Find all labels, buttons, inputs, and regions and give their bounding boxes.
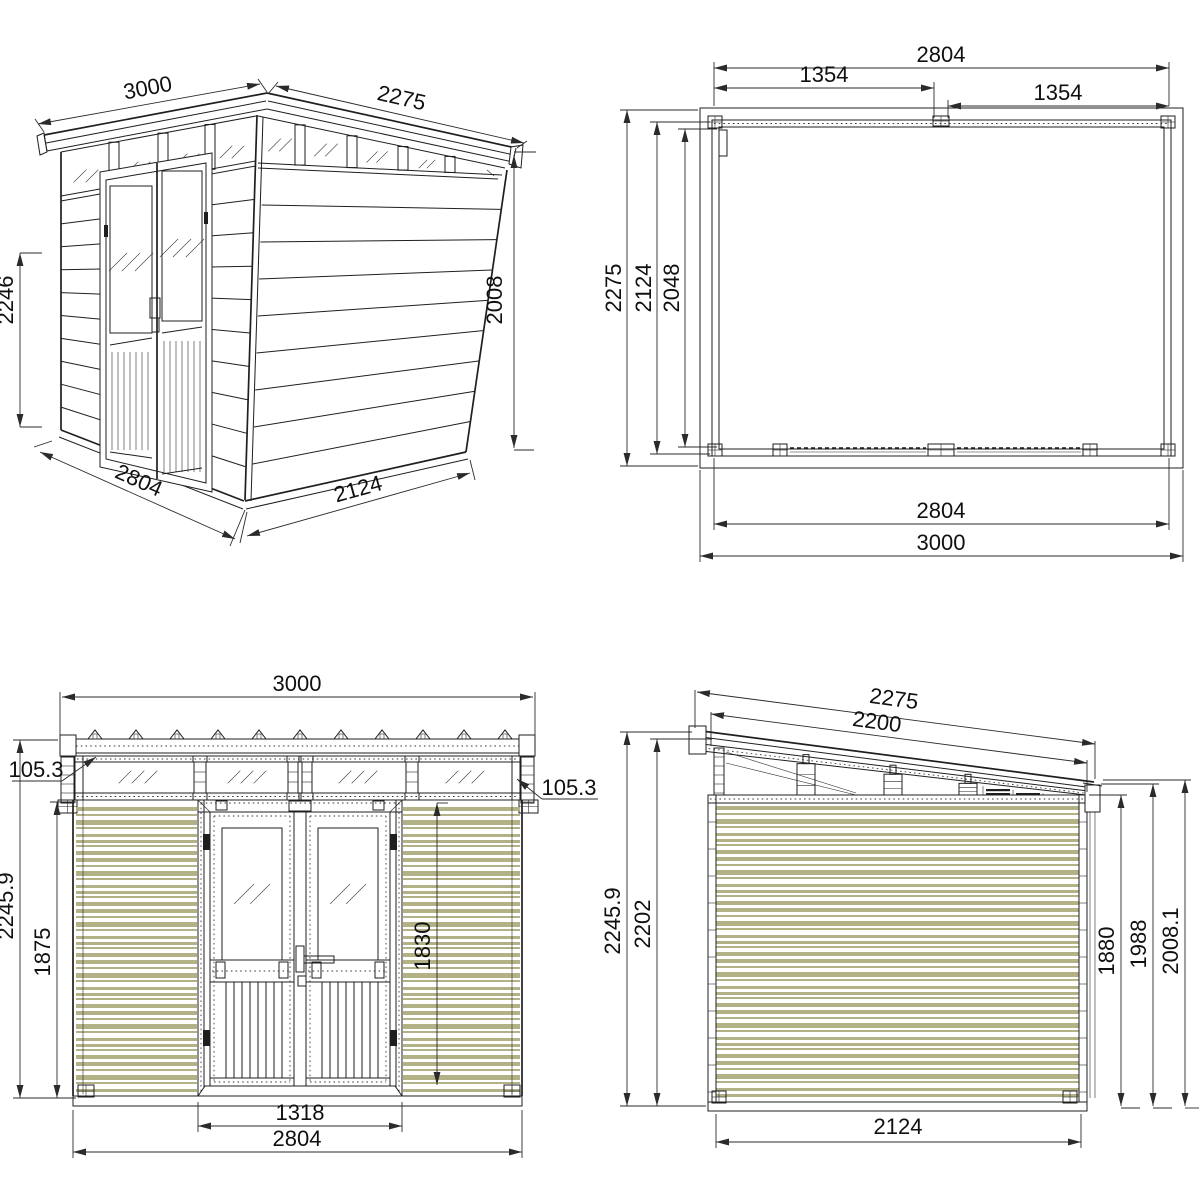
siding-board [76, 947, 197, 949]
siding-line [258, 300, 488, 316]
siding-board [403, 871, 520, 876]
siding-board [716, 997, 1079, 999]
siding-board [716, 952, 1079, 956]
dim-label-plan-roof-depth: 2275 [601, 264, 626, 313]
siding-board [76, 980, 197, 982]
roof-clip [293, 730, 307, 739]
siding-board [76, 960, 197, 964]
siding-board [76, 1082, 197, 1084]
hinge [204, 212, 208, 224]
siding-board [76, 896, 197, 898]
siding-board [76, 1062, 197, 1066]
drawing-line [267, 109, 513, 162]
siding-line [262, 205, 501, 209]
roof-clip [129, 730, 143, 739]
corner-blocks [708, 116, 1175, 456]
siding-board [76, 858, 197, 862]
dim-label-plan-interior-depth: 2048 [659, 264, 684, 313]
roof-clip [375, 730, 389, 739]
glass-hatch [314, 144, 327, 157]
siding-board [403, 1075, 520, 1080]
siding-board [76, 1004, 197, 1008]
extension-line [258, 79, 267, 92]
clerestory [75, 756, 520, 800]
siding-board [403, 820, 520, 825]
siding-board [716, 864, 1079, 866]
truss-post [959, 783, 977, 795]
roof-clip [211, 730, 225, 739]
siding-board [76, 885, 197, 888]
glass-hatch [232, 146, 245, 159]
siding-board [403, 878, 520, 880]
dim-label-front-roof-width: 3000 [273, 671, 322, 696]
glass-hatch [339, 771, 352, 784]
siding-board [403, 1018, 520, 1020]
siding-board [76, 1075, 197, 1080]
siding-board [403, 885, 520, 888]
siding-board [403, 896, 520, 898]
siding-board [403, 902, 520, 906]
siding-board [403, 1049, 520, 1051]
glass-hatch [376, 151, 387, 162]
roof-outline [700, 108, 1183, 468]
siding-board [716, 890, 1079, 893]
siding-board [76, 967, 197, 969]
siding-board [76, 845, 197, 847]
siding-board [76, 922, 197, 927]
dim-label-persp-roof-depth: 2275 [375, 80, 428, 115]
glass-hatch [119, 771, 132, 784]
siding-board [716, 986, 1079, 989]
mullion [194, 762, 206, 793]
dim-label-side-front-post-height: 2202 [630, 900, 655, 949]
base-skid [708, 1102, 1087, 1111]
dim-label-front-door-width: 1318 [276, 1100, 325, 1125]
vent-grille [983, 786, 1043, 795]
plan-view [620, 62, 1183, 562]
trim-strip [521, 757, 534, 803]
siding-board [76, 936, 197, 939]
dim-label-side-rear-wall-height: 1880 [1094, 927, 1119, 976]
hinge [390, 834, 397, 850]
leader-line [62, 757, 96, 781]
siding-board [716, 941, 1079, 944]
siding-board [716, 857, 1079, 861]
siding-board [716, 844, 1079, 846]
roof-clip [498, 730, 512, 739]
hinge [203, 834, 210, 850]
dim-label-front-door-height: 1830 [410, 922, 435, 971]
siding-board [76, 942, 197, 945]
glass-hatch [472, 771, 485, 784]
siding-board [76, 891, 197, 894]
siding-board [76, 814, 197, 816]
siding-board [716, 908, 1079, 912]
siding-board [716, 992, 1079, 995]
siding-side [253, 205, 501, 464]
siding-board [716, 1030, 1079, 1032]
dim-label-plan-wall-width-top: 2804 [917, 42, 966, 67]
trim-strip [708, 795, 716, 1102]
mullion [398, 147, 408, 171]
side-elevation-view [620, 690, 1199, 1148]
siding-board [716, 1094, 1079, 1097]
dim-label-plan-roof-width: 3000 [917, 530, 966, 555]
truss [714, 748, 977, 795]
double-door [100, 153, 212, 492]
siding-board [76, 807, 197, 811]
siding [716, 806, 1079, 1097]
trim-strip [714, 748, 724, 795]
siding-board [76, 993, 197, 996]
siding-board [716, 1088, 1079, 1091]
siding-board [716, 1074, 1079, 1079]
dim-label-front-wall-width: 2804 [273, 1126, 322, 1151]
siding-board [716, 850, 1079, 854]
extension-line [230, 510, 245, 546]
glass-hatch [365, 771, 378, 784]
double-door [198, 800, 402, 1096]
glass-hatch [254, 771, 267, 784]
siding-board [76, 1069, 197, 1071]
wall-detail [719, 130, 727, 156]
mullion [347, 136, 357, 168]
hinge [390, 1030, 397, 1046]
siding-board [716, 928, 1079, 930]
siding-board [403, 1055, 520, 1059]
siding-board [76, 827, 197, 829]
siding-board [716, 1010, 1079, 1014]
hinge [104, 225, 108, 237]
mullion [445, 156, 455, 172]
glass-hatch [487, 170, 494, 176]
siding-board [716, 1023, 1079, 1028]
siding-board [403, 1004, 520, 1008]
siding-board [76, 865, 197, 867]
dim-label-side-overall-height: 2245.9 [600, 887, 625, 954]
siding-board [403, 1062, 520, 1066]
siding-board [716, 1017, 1079, 1019]
siding-board [76, 871, 197, 876]
siding-board [403, 1024, 520, 1029]
siding-board [76, 1011, 197, 1015]
siding-board [76, 902, 197, 906]
fascia-left [689, 726, 706, 754]
siding-board [403, 834, 520, 837]
siding-board [403, 858, 520, 862]
siding-board [716, 877, 1079, 879]
drawing-svg: 3000 2275 2246 2008 2804 2124 2804 1354 … [0, 0, 1200, 1200]
siding-board [716, 826, 1079, 828]
dim-label-plan-bay-right: 1354 [1034, 80, 1083, 105]
siding-board [716, 1003, 1079, 1007]
vent-slat [986, 793, 1010, 795]
siding-board [403, 980, 520, 982]
dim-label-front-overhang-right: 105.3 [541, 775, 596, 800]
glass-hatch [446, 771, 459, 784]
siding-board [716, 959, 1079, 963]
drawing-line [702, 744, 1088, 791]
siding-board [76, 973, 197, 978]
siding-board [403, 851, 520, 855]
siding-board [716, 1043, 1079, 1046]
dim-label-side-roof-clear-length: 2200 [851, 706, 903, 737]
dim-label-persp-base-depth: 2124 [331, 470, 385, 507]
siding-board [76, 820, 197, 825]
roof-clip [334, 730, 348, 739]
mullion [288, 762, 298, 793]
siding-board [76, 1049, 197, 1051]
dim-label-front-wall-height: 1875 [30, 928, 55, 977]
siding-board [403, 973, 520, 978]
drawing-line [47, 109, 267, 151]
siding-board [716, 1037, 1079, 1040]
dim-label-persp-rear-height: 2008 [482, 276, 507, 325]
siding-board [403, 987, 520, 990]
siding-board [403, 891, 520, 894]
drawing-line [46, 101, 266, 143]
siding-board [403, 807, 520, 811]
siding-line [257, 331, 484, 353]
dim-label-side-rear-overall-height: 2008.1 [1158, 907, 1183, 974]
siding-board [716, 935, 1079, 938]
siding-board [716, 813, 1079, 815]
perspective-view [20, 79, 536, 546]
front-elevation-view [12, 692, 598, 1158]
dim-label-side-rear-height: 1988 [1126, 920, 1151, 969]
extension-line [268, 82, 278, 94]
drawing-line [245, 115, 257, 500]
roof-clip [88, 730, 102, 739]
mullion [406, 762, 418, 793]
siding-board [76, 834, 197, 837]
glass-hatch [228, 771, 241, 784]
siding-board [403, 840, 520, 843]
siding-board [716, 839, 1079, 842]
roof [60, 730, 535, 756]
siding-board [403, 1069, 520, 1071]
siding-board [716, 972, 1079, 977]
siding-board [76, 878, 197, 880]
siding-board [403, 865, 520, 867]
siding-board [76, 916, 197, 918]
dims-perspective [20, 79, 536, 546]
glass-hatch [132, 771, 145, 784]
siding-board [76, 1024, 197, 1029]
siding-board [716, 1068, 1079, 1070]
drawing-line [694, 736, 1094, 788]
siding-board [716, 1048, 1079, 1050]
wall-outer [712, 120, 1171, 456]
siding-board [716, 833, 1079, 836]
drawing-line [198, 800, 402, 1096]
siding-board [403, 909, 520, 913]
drawing-line [726, 763, 856, 795]
siding-line [259, 270, 492, 279]
truss-post [884, 774, 902, 795]
siding-board [403, 1031, 520, 1033]
glass-hatch [268, 139, 281, 152]
siding-board [403, 845, 520, 847]
siding-board [76, 1055, 197, 1059]
siding-board [76, 840, 197, 843]
extension-line [240, 512, 247, 543]
dim-label-plan-wall-depth: 2124 [631, 264, 656, 313]
dim-label-persp-roof-width: 3000 [121, 71, 174, 105]
siding-board [403, 1038, 520, 1041]
siding-line [255, 361, 478, 390]
siding-board [403, 916, 520, 918]
vent-slat [1016, 793, 1040, 795]
siding-board [403, 993, 520, 996]
drawing-line [100, 153, 212, 492]
siding-board [403, 1082, 520, 1084]
siding-board [76, 1018, 197, 1020]
siding-board [716, 819, 1079, 824]
drawing-line [251, 117, 263, 501]
siding-board [716, 870, 1079, 875]
siding-board [716, 1054, 1079, 1058]
siding-line [260, 240, 496, 242]
siding-board [716, 884, 1079, 887]
siding-board [716, 946, 1079, 948]
door-track [773, 444, 1097, 456]
glass-hatch [352, 771, 365, 784]
glass-hatch [74, 170, 87, 183]
drawing-line [726, 752, 856, 793]
siding-board [716, 895, 1079, 897]
glass-hatch [427, 160, 435, 168]
extension-line [34, 441, 52, 447]
roof-clip [416, 730, 430, 739]
siding-board [76, 929, 197, 931]
siding-board [76, 1044, 197, 1047]
wall-inner [719, 127, 1164, 449]
siding-board [76, 953, 197, 957]
extension-line [470, 460, 475, 480]
siding-board [716, 901, 1079, 905]
siding-board [716, 915, 1079, 917]
glass-hatch [241, 771, 254, 784]
siding-board [76, 1031, 197, 1033]
vent-slat [986, 789, 1010, 791]
siding-board [716, 1061, 1079, 1065]
siding-board [716, 966, 1079, 968]
glass-hatch [145, 771, 158, 784]
dim-label-front-overall-height: 2245.9 [0, 872, 18, 939]
siding-board [716, 921, 1079, 926]
glass-hatch [325, 144, 338, 157]
dims-plan [620, 62, 1183, 562]
siding-board [76, 909, 197, 913]
dim-label-side-base-depth: 2124 [874, 1114, 923, 1139]
siding-line [254, 391, 474, 427]
drawing-line [60, 735, 76, 756]
glass-hatch [366, 151, 377, 162]
siding-board [716, 979, 1079, 981]
siding-board [403, 827, 520, 829]
hinge [203, 1030, 210, 1046]
wall-top-band [708, 795, 1087, 803]
siding-board [76, 998, 197, 1000]
glass-hatch [459, 771, 472, 784]
siding-board [76, 1038, 197, 1041]
drawing-line [44, 93, 267, 135]
dim-label-plan-wall-width-bottom: 2804 [917, 498, 966, 523]
roof-clip [170, 730, 184, 739]
dim-label-plan-bay-left: 1354 [800, 62, 849, 87]
siding-board [403, 1011, 520, 1015]
siding-board [716, 806, 1079, 810]
threshold [198, 1086, 402, 1096]
siding-board [403, 1089, 520, 1092]
mullion [302, 762, 312, 793]
roof-clip [457, 730, 471, 739]
siding-board [403, 1044, 520, 1047]
siding-board [403, 998, 520, 1000]
roof-clip [252, 730, 266, 739]
technical-drawing-sheet: 3000 2275 2246 2008 2804 2124 2804 1354 … [0, 0, 1200, 1200]
glass-hatch [86, 170, 99, 183]
drawing-line [519, 735, 535, 756]
extension-line [35, 119, 44, 132]
mullion [295, 125, 305, 165]
siding-board [403, 814, 520, 816]
dim-label-persp-front-height: 2246 [0, 276, 18, 325]
glass-hatch [220, 146, 233, 159]
siding-board [76, 851, 197, 855]
siding-board [716, 1081, 1079, 1083]
dim-label-front-overhang-left: 105.3 [8, 757, 63, 782]
glass-hatch [419, 160, 427, 168]
glass-hatch [279, 139, 292, 152]
siding-board [76, 987, 197, 990]
trim-strip [1079, 795, 1087, 1102]
